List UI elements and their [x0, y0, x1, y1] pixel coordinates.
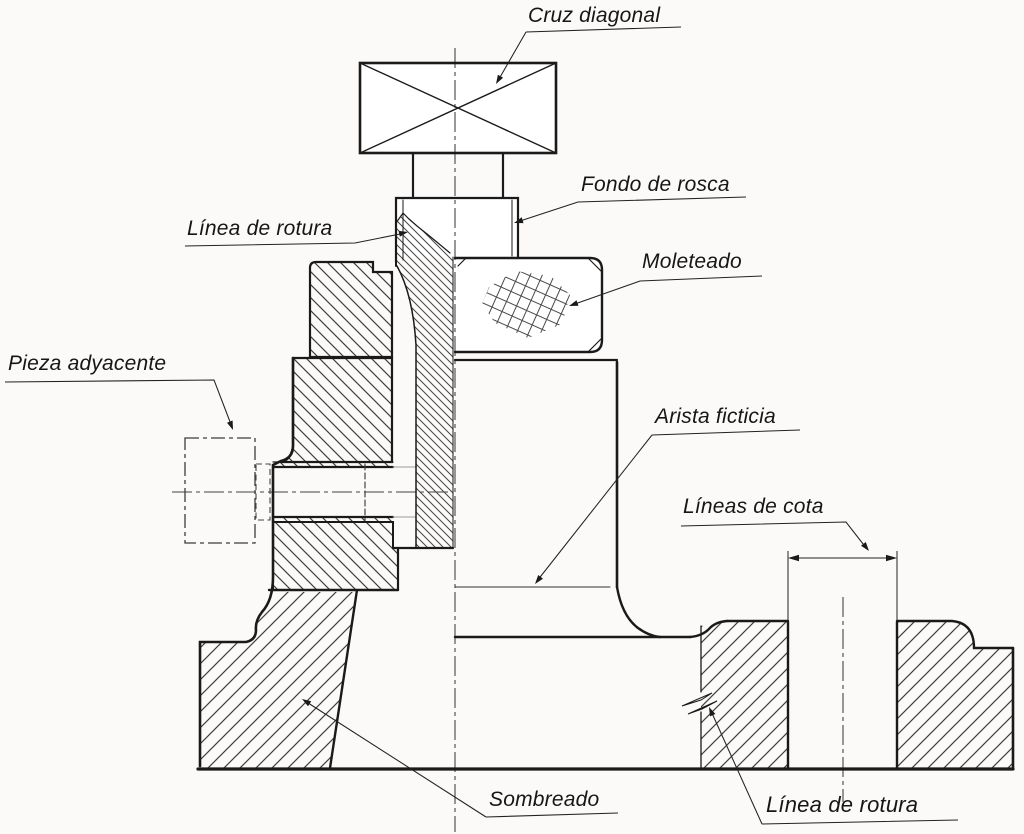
- leader-fondo-de-rosca: [517, 197, 746, 222]
- section-fills: [200, 63, 1013, 768]
- arrow-pieza-adyacente: [227, 421, 233, 431]
- right-flange-right-hatch: [897, 621, 1013, 768]
- right-flange-left-hatch: [701, 622, 788, 768]
- label-moleteado: Moleteado: [642, 251, 742, 272]
- neck-shaft: [413, 153, 503, 197]
- dim-arrow-left: [788, 555, 799, 561]
- gland-mid-block-hatch: [280, 358, 392, 462]
- leader-pieza-adyacente: [5, 380, 232, 427]
- label-linea-rotura-bottom: Línea de rotura: [766, 794, 918, 816]
- label-pieza-adyacente: Pieza adyacente: [8, 353, 166, 374]
- label-sombreado: Sombreado: [489, 789, 599, 810]
- flange-block-hatch: [273, 522, 398, 590]
- drawing-canvas: [0, 0, 1024, 834]
- technical-drawing-page: Cruz diagonal Fondo de rosca Línea de ro…: [0, 0, 1024, 834]
- label-linea-rotura-top: Línea de rotura: [187, 218, 332, 239]
- label-arista-ficticia: Arista ficticia: [655, 406, 776, 427]
- local-break-section-hatch: [396, 213, 453, 548]
- label-cruz-diagonal: Cruz diagonal: [528, 5, 660, 26]
- arrow-arista-ficticia: [535, 575, 543, 584]
- label-fondo-de-rosca: Fondo de rosca: [581, 174, 730, 195]
- dim-arrow-right: [886, 555, 897, 561]
- leader-lineas-de-cota: [681, 522, 867, 549]
- adjacent-part-phantom-outline: [185, 438, 255, 543]
- label-lineas-de-cota: Líneas de cota: [683, 496, 824, 517]
- gland-upper-block-hatch: [310, 262, 392, 357]
